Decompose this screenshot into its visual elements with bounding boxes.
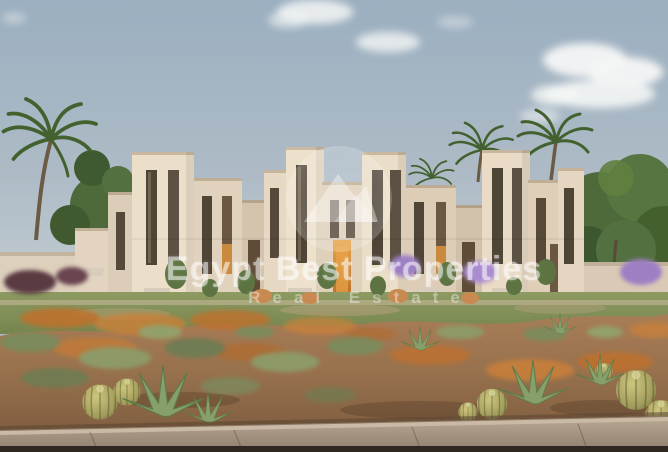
property-photo: Egypt Best Properties Real Estate [0, 0, 668, 452]
watermark-subtitle: Real Estate [114, 288, 594, 308]
mountain-peak-circle-icon [286, 146, 392, 252]
watermark-title: Egypt Best Properties [114, 250, 594, 289]
